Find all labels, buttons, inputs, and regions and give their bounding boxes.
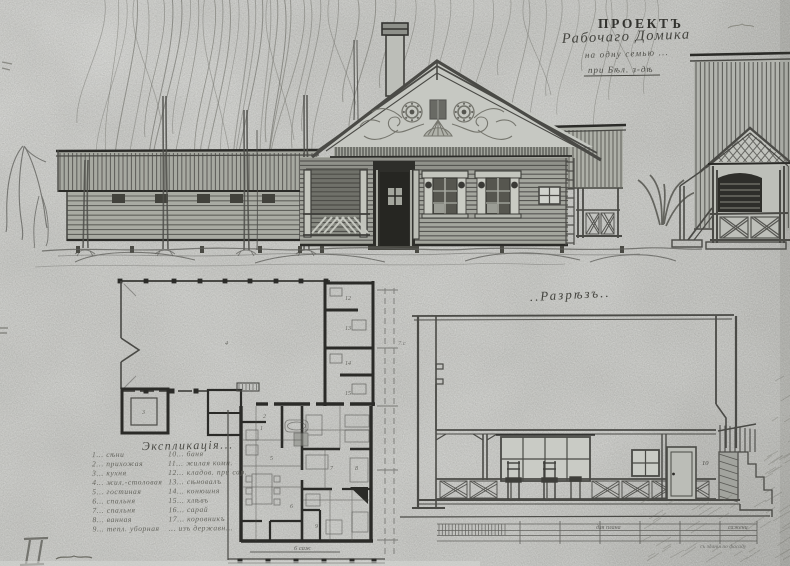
- svg-text:14: 14: [345, 360, 351, 367]
- svg-text:12... кладов. при сар.: 12... кладов. при сар.: [168, 467, 247, 477]
- svg-text:сажени: сажени: [728, 525, 748, 531]
- svg-text:съ зданiя по фасаду: съ зданiя по фасаду: [700, 543, 747, 550]
- svg-text:16... сарай: 16... сарай: [168, 505, 208, 514]
- svg-text:4: 4: [225, 340, 228, 347]
- svg-text:для плана: для плана: [596, 524, 621, 531]
- svg-text:4... жил.-столовая: 4... жил.-столовая: [92, 477, 162, 487]
- svg-text:1... сѣни: 1... сѣни: [92, 450, 125, 459]
- svg-text:3: 3: [141, 410, 145, 416]
- svg-text:14... конюшня: 14... конюшня: [168, 486, 220, 495]
- svg-text:10: 10: [702, 460, 709, 467]
- svg-text:5... гостиная: 5... гостиная: [92, 487, 141, 496]
- svg-text:5: 5: [270, 456, 273, 462]
- svg-text:13... сѣновалъ: 13... сѣновалъ: [168, 477, 221, 486]
- svg-text:... изъ державн...: ... изъ державн...: [169, 523, 234, 533]
- svg-text:15: 15: [345, 391, 351, 397]
- svg-text:10... баня: 10... баня: [168, 449, 204, 458]
- svg-text:1: 1: [260, 426, 263, 432]
- svg-text:при Бѣл. з-дѣ: при Бѣл. з-дѣ: [588, 64, 654, 75]
- svg-text:2... прихожая: 2... прихожая: [92, 459, 143, 468]
- svg-text:6 саж: 6 саж: [294, 545, 311, 552]
- svg-text:8: 8: [355, 466, 358, 472]
- svg-text:13: 13: [345, 326, 351, 332]
- svg-text:8... ванная: 8... ванная: [92, 515, 132, 524]
- svg-text:7... спальня: 7... спальня: [92, 505, 135, 514]
- svg-text:6: 6: [290, 504, 293, 510]
- svg-text:11... жилая комн.: 11... жилая комн.: [168, 458, 233, 468]
- svg-text:9... тепл. уборная: 9... тепл. уборная: [93, 524, 160, 534]
- svg-text:2: 2: [263, 414, 266, 420]
- svg-text:3... кухня: 3... кухня: [91, 468, 127, 477]
- svg-text:17... коровникъ: 17... коровникъ: [168, 514, 225, 523]
- svg-text:7.с: 7.с: [398, 340, 406, 347]
- svg-text:12: 12: [345, 296, 351, 302]
- svg-text:15... хлѣвъ: 15... хлѣвъ: [168, 496, 208, 505]
- svg-text:6... спальня: 6... спальня: [92, 496, 135, 505]
- svg-text:9: 9: [315, 524, 318, 530]
